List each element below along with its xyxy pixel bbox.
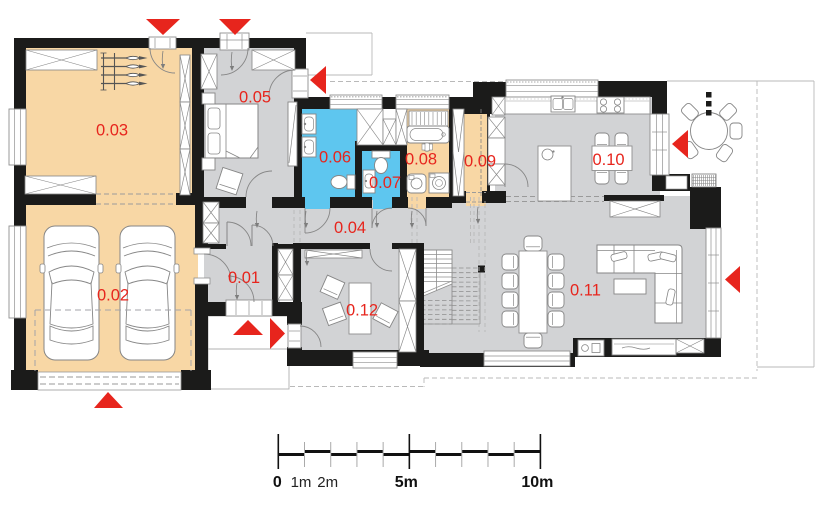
svg-text:5m: 5m (395, 474, 418, 491)
svg-text:0: 0 (273, 474, 282, 491)
svg-text:0.08: 0.08 (405, 151, 437, 169)
svg-text:0.07: 0.07 (369, 174, 401, 192)
svg-text:0.06: 0.06 (319, 149, 351, 167)
svg-text:0.11: 0.11 (570, 282, 601, 300)
svg-text:2m: 2m (317, 474, 338, 491)
svg-text:0.10: 0.10 (593, 151, 625, 169)
svg-text:0.12: 0.12 (346, 302, 378, 320)
svg-text:0.03: 0.03 (96, 122, 128, 140)
svg-text:1m: 1m (291, 474, 312, 491)
svg-text:10m: 10m (521, 474, 553, 491)
svg-text:0.04: 0.04 (334, 219, 366, 237)
svg-text:0.09: 0.09 (464, 153, 496, 171)
svg-text:0.01: 0.01 (228, 269, 260, 287)
svg-text:0.05: 0.05 (239, 89, 271, 107)
svg-text:0.02: 0.02 (97, 287, 129, 305)
